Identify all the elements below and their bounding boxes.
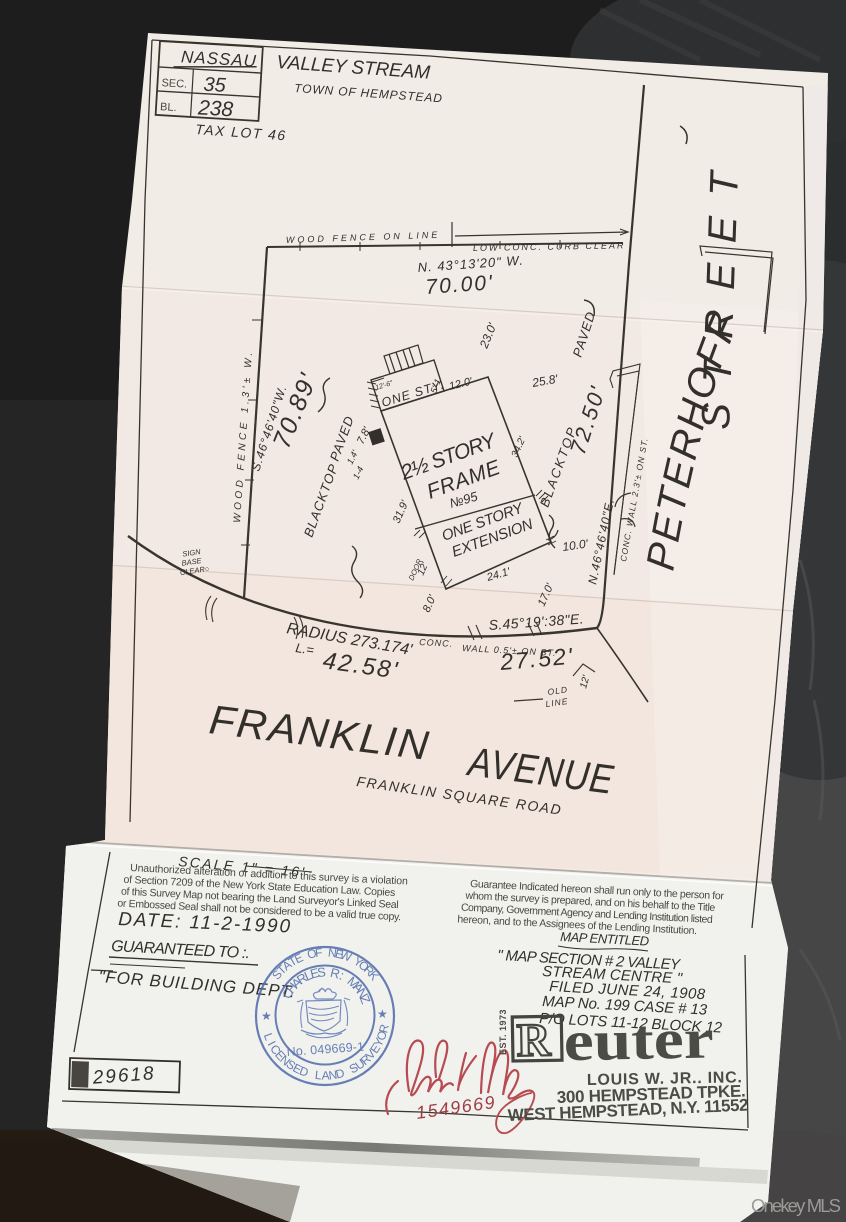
svg-text:70.00': 70.00' [425, 271, 495, 299]
svg-text:★: ★ [377, 1007, 388, 1021]
svg-text:CONC.: CONC. [419, 637, 453, 649]
svg-text:Onekey MLS: Onekey MLS [751, 1195, 841, 1216]
svg-text:238: 238 [196, 96, 234, 121]
svg-text:★: ★ [261, 1009, 272, 1023]
svg-text:S: S [316, 964, 326, 980]
svg-text:R: R [516, 1014, 552, 1067]
svg-text:euter: euter [563, 1007, 714, 1073]
svg-text:F: F [314, 945, 323, 960]
svg-text:L.=: L.= [295, 640, 316, 657]
svg-text:BL.: BL. [160, 101, 177, 114]
svg-text:SEC.: SEC. [161, 77, 187, 91]
svg-text:35: 35 [203, 74, 227, 97]
svg-text:EST. 1973: EST. 1973 [498, 1009, 508, 1055]
